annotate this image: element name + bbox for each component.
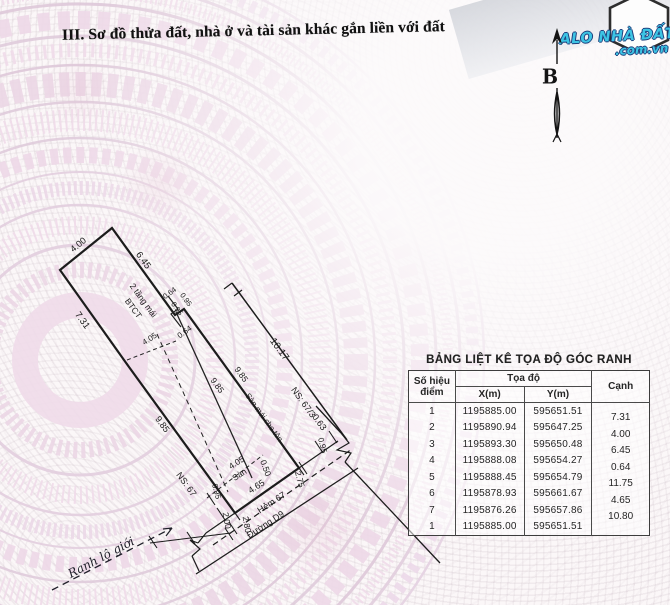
cell-point-id: 5 (409, 469, 456, 486)
dim-label-400: 4.00 (68, 235, 88, 254)
cell-y: 595654.27 (524, 453, 592, 470)
dim-label-200: 2.00 (221, 511, 234, 529)
cell-point-id: 1 (409, 519, 456, 536)
cell-point-id: 7 (409, 502, 456, 519)
edge-values: 7.31 4.00 6.45 0.64 11.75 4.65 10.80 (592, 403, 650, 536)
col-header-coords: Tọa độ (455, 371, 592, 387)
col-header-x: X(m) (455, 387, 524, 403)
dim-label-095d: 0.95 (210, 483, 223, 501)
dim-label-405a: 4.05 (141, 331, 159, 347)
road-label-hem67: Hẻm 67 (255, 490, 287, 516)
edge-value: 4.00 (592, 429, 649, 440)
edge-value: 10.80 (592, 511, 649, 522)
cell-x: 1195885.00 (455, 403, 524, 420)
dim-label-095c: 0.95 (316, 437, 329, 455)
cell-y: 595657.86 (524, 502, 592, 519)
col-header-y: Y(m) (524, 387, 592, 403)
edge-value: 11.75 (592, 478, 649, 489)
table-title: BẢNG LIỆT KÊ TỌA ĐỘ GÓC RANH (406, 354, 652, 366)
cell-point-id: 6 (409, 486, 456, 503)
col-header-point: Số hiệu điểm (409, 371, 456, 403)
dim-label-985c: 9.85 (209, 376, 227, 395)
cell-point-id: 3 (409, 436, 456, 453)
dim-label-064b: 0.64 (176, 323, 194, 340)
boundary-label-ranh-lo-gioi: Ranh lộ giới (65, 534, 137, 581)
col-header-edge: Cạnh (592, 371, 650, 403)
cell-point-id: 1 (409, 403, 456, 420)
edge-value: 4.65 (592, 495, 649, 506)
scanned-land-certificate-page: { "page": { "title": "III. Sơ đồ thửa đấ… (0, 0, 670, 605)
neighbor-label-ns673: NS: 67/3 (289, 385, 318, 419)
cell-y: 595651.51 (524, 403, 592, 420)
neighbor-boundary-line (224, 283, 347, 440)
neighbor-label-ns67: NS: 67 (174, 470, 198, 498)
coordinate-table: BẢNG LIỆT KÊ TỌA ĐỘ GÓC RANH Số hiệu điể… (406, 354, 652, 536)
cell-y: 595661.67 (524, 486, 592, 503)
cell-y: 595650.48 (524, 436, 592, 453)
cell-x: 1195893.30 (455, 436, 524, 453)
diagram-labels: 4.00 6.45 7.31 2 tầng mái BTCT 0.64 0.95… (65, 235, 329, 581)
cell-point-id: 4 (409, 453, 456, 470)
cell-y: 595654.79 (524, 469, 592, 486)
cell-x: 1195890.94 (455, 420, 524, 437)
dim-label-731: 7.31 (72, 310, 92, 331)
cell-x: 1195878.93 (455, 486, 524, 503)
cell-x: 1195888.45 (455, 469, 524, 486)
cell-x: 1195888.08 (455, 453, 524, 470)
dim-label-275: 2.75 (293, 470, 307, 489)
dim-label-064a: 0.64 (161, 285, 178, 301)
dim-label-050: 0.50 (258, 458, 273, 477)
dim-label-985b: 9.85 (153, 414, 171, 434)
dim-label-063: 0.63 (310, 412, 328, 432)
cell-y: 595647.25 (524, 420, 592, 437)
table-row: 1 1195885.00 595651.51 7.31 4.00 6.45 0.… (409, 403, 650, 420)
edge-value: 7.31 (592, 412, 649, 423)
cell-x: 1195876.26 (455, 502, 524, 519)
edge-value: 0.64 (592, 462, 649, 473)
cell-y: 595651.51 (524, 519, 592, 536)
edge-value: 6.45 (592, 445, 649, 456)
cell-x: 1195885.00 (455, 519, 524, 536)
roof-deck-label: Sàn mái che tôn (243, 391, 284, 443)
cell-point-id: 2 (409, 420, 456, 437)
